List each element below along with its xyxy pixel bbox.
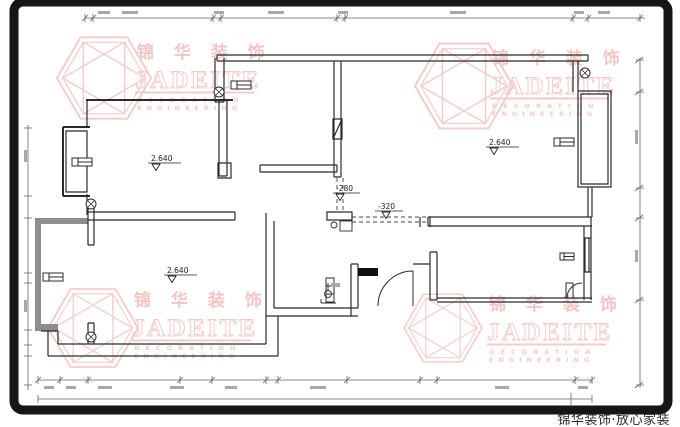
elevation-value: 2.640	[151, 154, 173, 163]
elevation-value: 2.640	[167, 266, 189, 275]
watermark-chinese: 锦 华 装 饰	[137, 42, 272, 63]
floor-plan-screenshot: 锦 华 装 饰 JADEITE DECORATION ENGINEERING 锦…	[0, 0, 680, 427]
watermark-sub1: DECORATION	[492, 102, 599, 110]
elevation-value: -320	[378, 202, 395, 211]
watermark-english: JADEITE	[132, 315, 258, 342]
watermark-chinese: 锦 华 装 饰	[492, 48, 627, 69]
window-symbol	[43, 273, 63, 281]
watermark-sub1: DECORATION	[134, 344, 241, 352]
watermark-chinese: 锦 华 装 饰	[489, 294, 624, 315]
watermark-sub2: ENGINEERING	[137, 104, 242, 112]
window-symbol	[231, 81, 251, 89]
elevation-value: 2.640	[489, 138, 511, 147]
floor-plan-canvas: 锦 华 装 饰 JADEITE DECORATION ENGINEERING 锦…	[0, 0, 680, 427]
watermark-sub2: ENGINEERING	[489, 356, 594, 364]
entry-threshold	[358, 268, 378, 276]
window-symbol	[554, 138, 574, 146]
window-symbol	[560, 253, 574, 260]
watermark-english: JADEITE	[487, 319, 613, 346]
elevation-value: -280	[336, 184, 353, 193]
footer-text: 锦华装饰·放心家装	[557, 412, 670, 427]
watermark-english: JADEITE	[490, 73, 616, 100]
watermark-sub1: DECORATION	[489, 348, 596, 356]
watermark-chinese: 锦 华 装 饰	[134, 290, 269, 311]
window-symbol	[72, 158, 92, 166]
